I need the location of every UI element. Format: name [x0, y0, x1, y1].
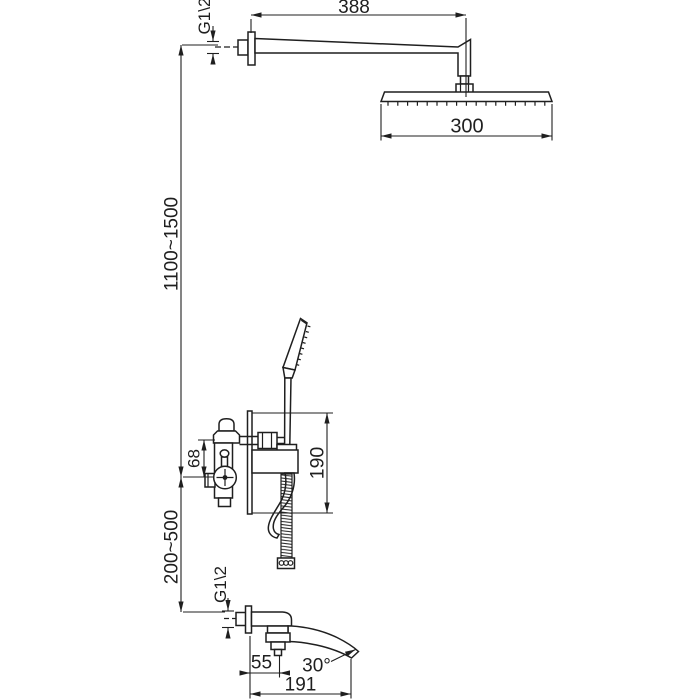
dim-text-spout-angle: 30° — [302, 656, 331, 677]
dim-text-arm-length: 388 — [338, 0, 370, 18]
dim-text-spout-drop: 200~500 — [162, 510, 183, 585]
wand-handle-pipe — [285, 378, 291, 445]
temp-handle-stem — [222, 457, 228, 467]
spout-aerator-tip — [275, 650, 282, 656]
spout-collar — [268, 626, 289, 633]
dim-text-trim-height: 190 — [307, 447, 329, 480]
hand-shower-wand — [283, 319, 307, 371]
spout-lower-body — [266, 633, 290, 642]
shower-arm-assembly — [215, 32, 552, 106]
dim-text-top-thread: G1\2 — [195, 0, 214, 34]
dim-text-spout-offset: 55 — [251, 653, 272, 674]
arm-wall-flange — [248, 32, 255, 65]
arm-wall-stub — [238, 40, 248, 55]
valve-bottom-port — [219, 498, 231, 507]
shower-arm — [255, 39, 471, 77]
diagram-page: 388 G1\2 1100~1500 200~500 68 190 300 G1… — [0, 0, 700, 700]
spout-wall-flange — [246, 606, 252, 633]
temp-handle-knob — [220, 450, 229, 457]
dim-text-port-offset: 68 — [185, 449, 204, 468]
hose-end-nut — [278, 558, 295, 569]
spout-wall-stub — [236, 613, 246, 626]
dimension-annotations: 388 G1\2 1100~1500 200~500 68 190 300 G1… — [162, 0, 553, 699]
wand-shoulder — [283, 368, 295, 379]
crossover-nut — [258, 433, 277, 449]
valve-top-cap — [219, 419, 234, 431]
hand-shower — [283, 319, 310, 446]
dim-text-head-width: 300 — [450, 116, 483, 138]
drawing-canvas: 388 G1\2 1100~1500 200~500 68 190 300 G1… — [0, 0, 700, 700]
dim-text-spout-length: 191 — [285, 675, 317, 696]
dial-center-dot — [223, 475, 228, 480]
trim-spout-body — [252, 450, 298, 473]
dim-text-mount-height: 1100~1500 — [162, 197, 183, 291]
spout-aerator — [271, 642, 285, 650]
dim-text-bottom-thread: G1\2 — [211, 566, 230, 603]
valve-shoulder — [214, 431, 240, 443]
spout-body — [252, 612, 292, 626]
flexible-hose — [281, 474, 292, 558]
arm-neck — [461, 76, 469, 84]
tub-spout-assembly — [224, 606, 359, 658]
